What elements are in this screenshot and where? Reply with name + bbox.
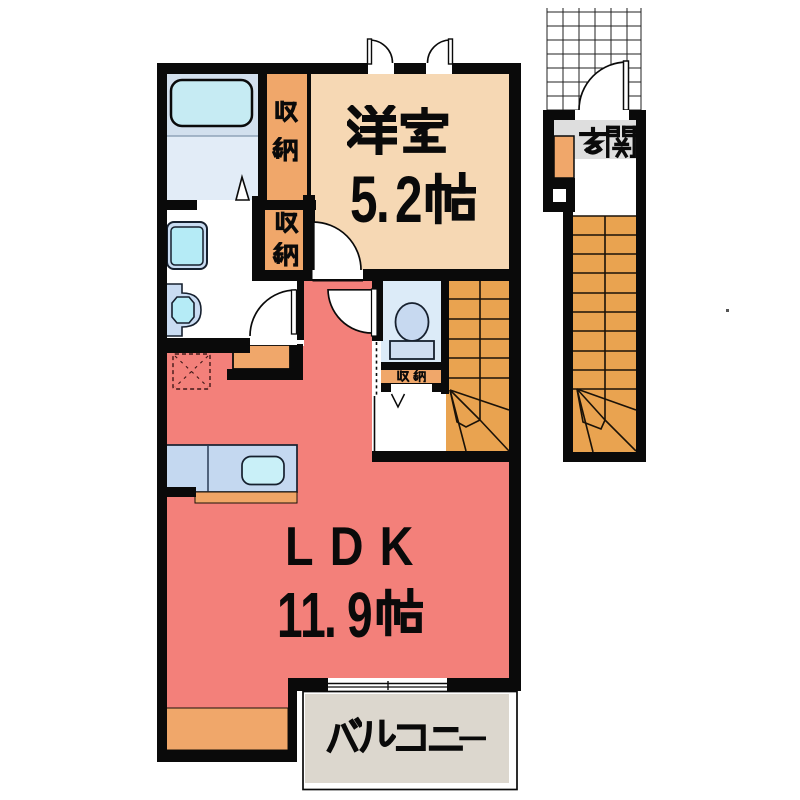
svg-text:.: . xyxy=(376,163,390,237)
svg-text:LDK: LDK xyxy=(285,515,430,576)
svg-text:5: 5 xyxy=(350,163,378,237)
svg-text:11: 11 xyxy=(277,580,326,651)
svg-text:.: . xyxy=(324,580,337,651)
svg-text:9: 9 xyxy=(347,580,373,651)
svg-text:2: 2 xyxy=(395,163,423,237)
